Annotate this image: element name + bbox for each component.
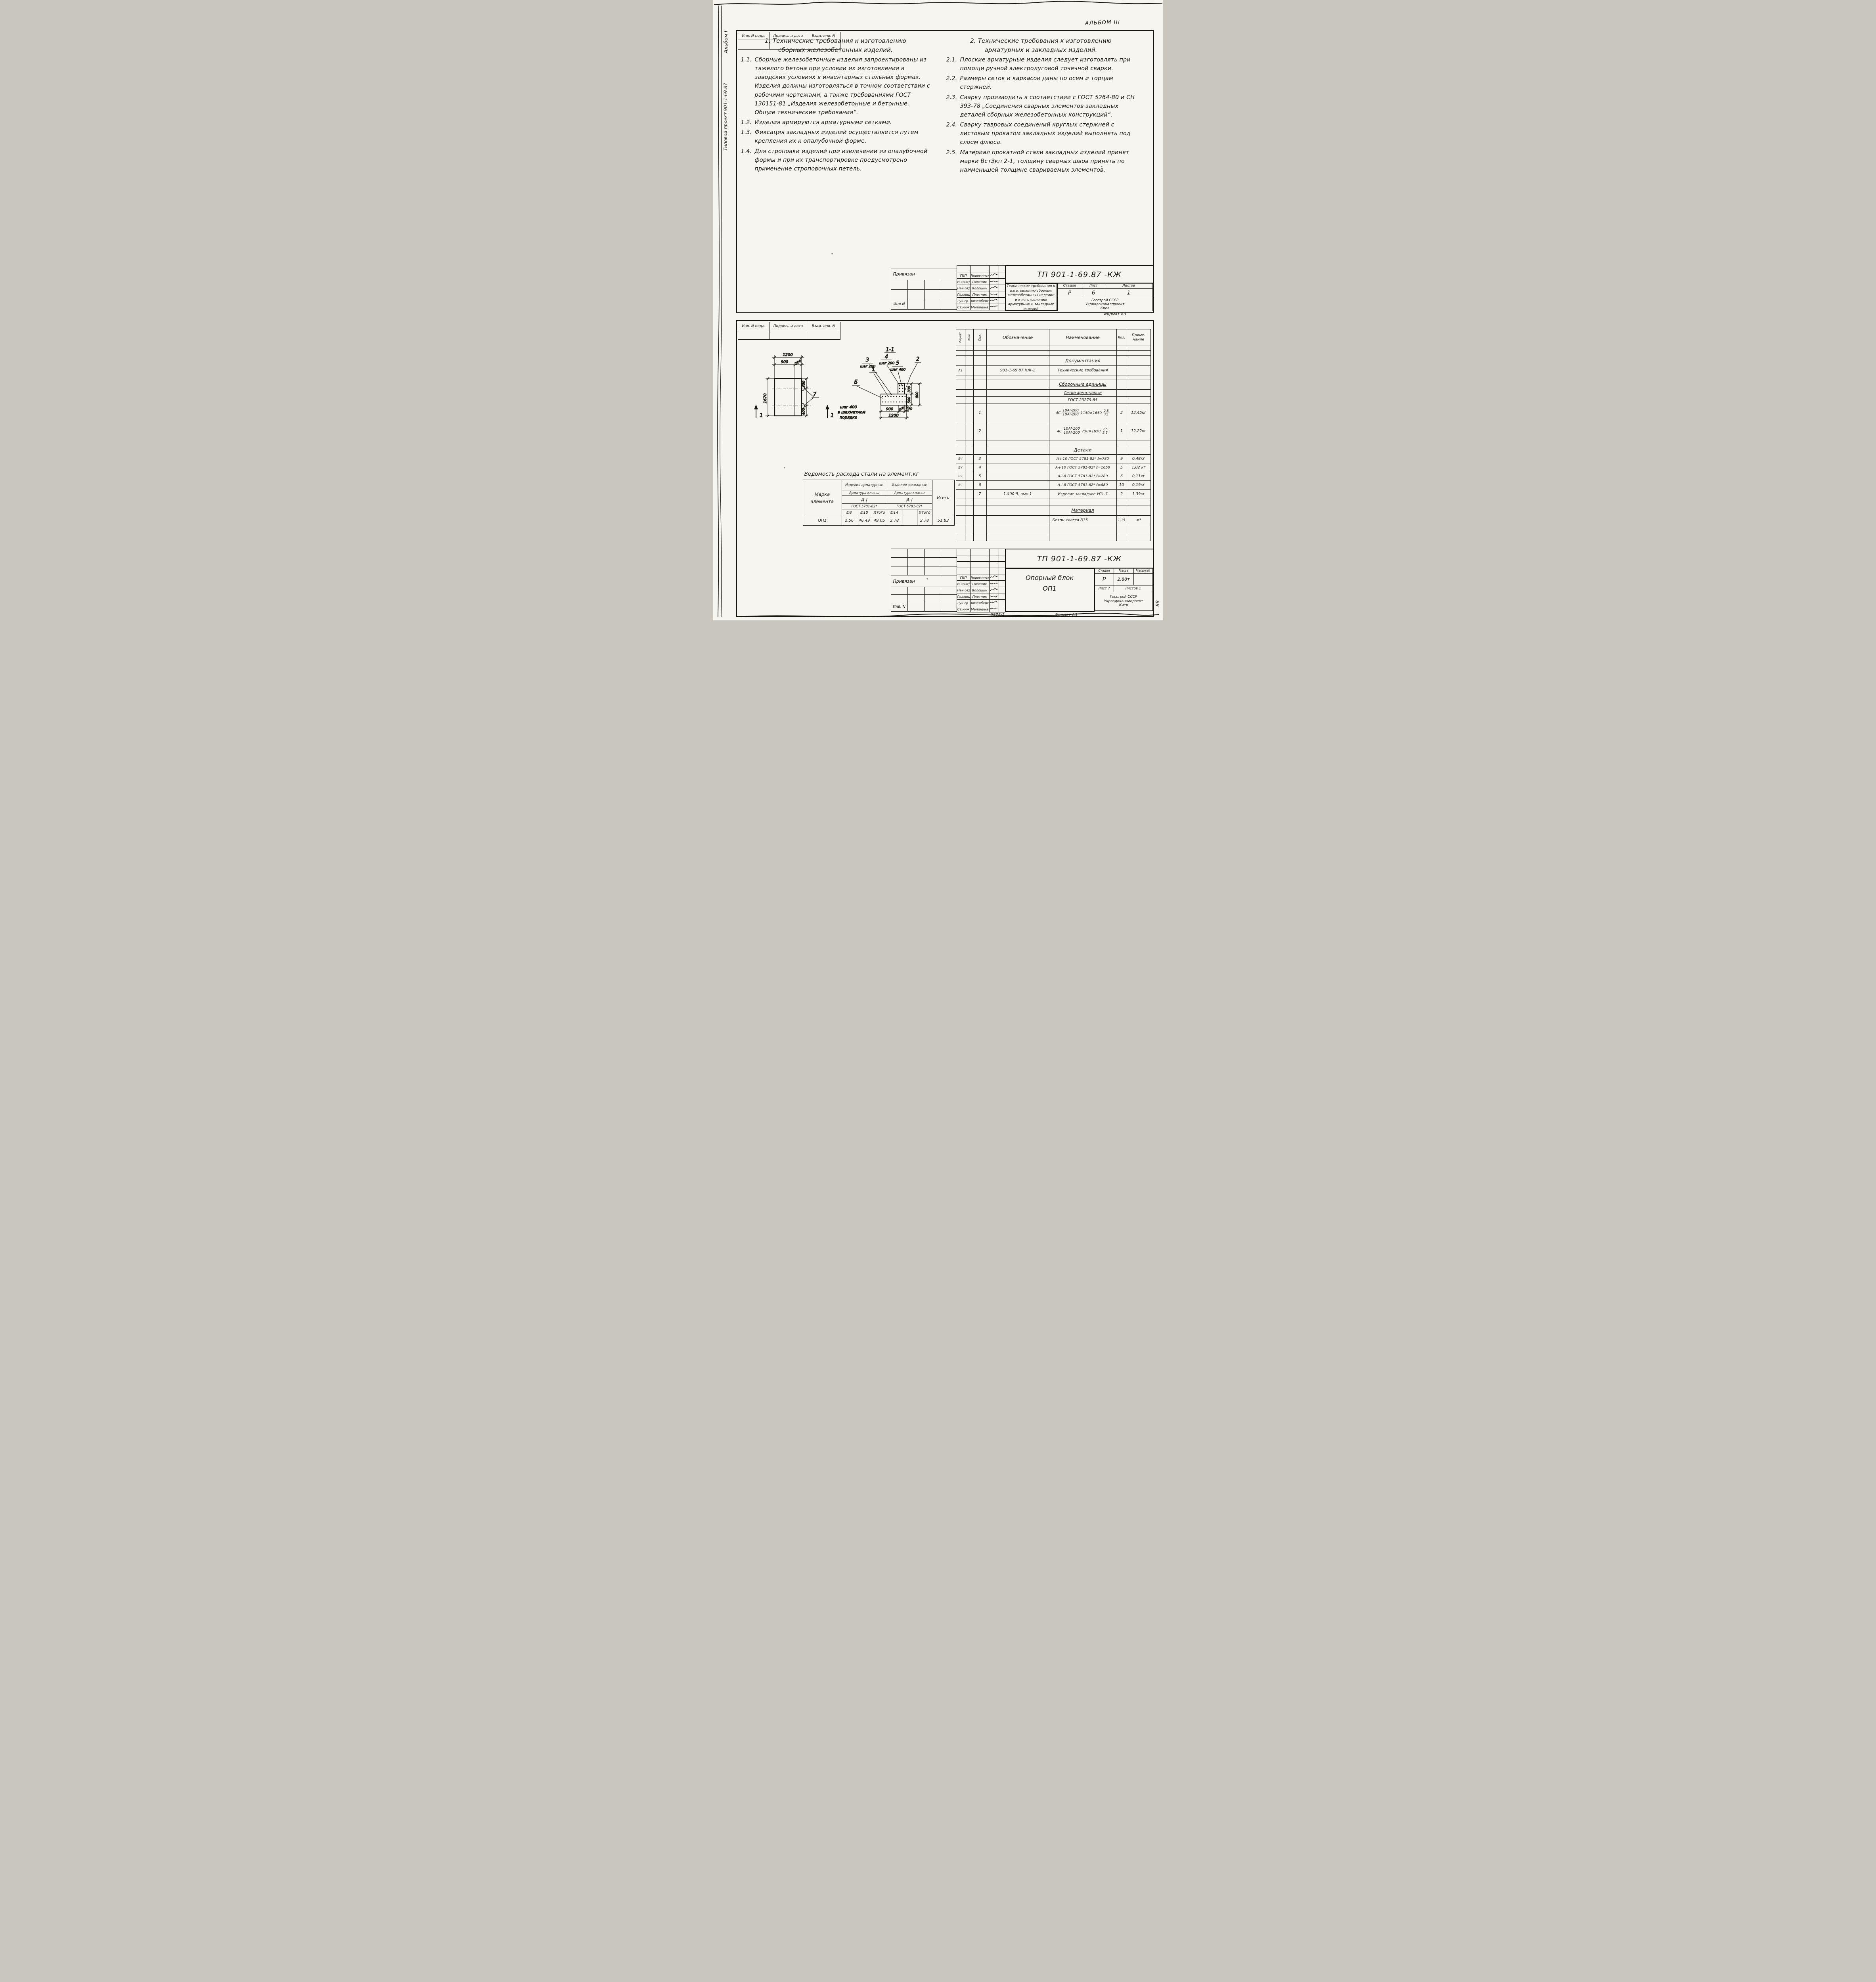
- spec-row-pos: 5: [973, 472, 986, 481]
- spec-row-pos: 6: [973, 481, 986, 490]
- steel-dia-10: Ø10: [857, 509, 872, 516]
- spec-row-pos: 3: [973, 455, 986, 463]
- inv-number-label: Инв. N: [891, 602, 907, 612]
- signature-icon: [990, 575, 998, 579]
- mass-header: Масса: [1114, 568, 1133, 574]
- stage-value: Р: [1057, 289, 1082, 298]
- steel-total-header: Всего: [932, 480, 954, 516]
- item-number: 2.1.: [946, 55, 958, 73]
- signature-icon: [990, 594, 998, 598]
- steel-class-value1: А-I: [842, 496, 887, 504]
- plan-dim-a: 900: [781, 360, 788, 364]
- role-label: Рук.гр.: [957, 600, 970, 606]
- callout-b-note1: шаг 400: [840, 405, 857, 409]
- steel-group2-header: Изделия закладные: [887, 480, 932, 490]
- item-number: 1.4.: [741, 147, 753, 173]
- steel-table-title: Ведомость расхода стали на элемент,кг: [804, 471, 919, 477]
- signature-icon: [990, 601, 998, 604]
- margin-project-note: Типовой проект 901-1-69.87: [723, 59, 728, 151]
- callout-5-note: шаг 400: [890, 368, 905, 372]
- signature-icon: [990, 305, 998, 308]
- stage-header: Стадия: [1095, 568, 1114, 574]
- spec-section-documentation: Документация: [1065, 358, 1100, 363]
- spec-row-note: 0,19кг: [1127, 481, 1150, 490]
- item-text: Фиксация закладных изделий осуществляетс…: [755, 128, 930, 145]
- spec-format-header: Формат: [956, 329, 965, 346]
- spec-row-name: А-I-8 ГОСТ 5781-82* ℓ=280: [1049, 472, 1116, 481]
- sheet2-stamp-strip: Инв. N подл. Подпись и дата Взам. инв. N: [738, 322, 840, 340]
- scale-value: [1133, 574, 1152, 585]
- role-name: Айзенберг: [970, 600, 989, 606]
- sheet-header: Лист: [1082, 283, 1105, 289]
- callout-5: 5: [896, 360, 899, 366]
- signature-icon: [990, 292, 998, 296]
- sheet1-format-note: Формат А3: [1104, 312, 1126, 316]
- sheet2-attached-box: Привязан Инв. N: [891, 576, 957, 612]
- spec-mesh1-name: 4С 10АI-20010АI-200 1150×1650 2,575: [1049, 404, 1116, 422]
- specification-table: Формат Зона Поз. Обозначение Наименовани…: [956, 329, 1151, 541]
- role-name: Волошин: [970, 285, 989, 291]
- sheet2-doc-number: 9575/1: [991, 613, 1005, 617]
- spec-row-note: 12,45кг: [1127, 404, 1150, 422]
- mesh-prefix: 4С: [1056, 411, 1061, 415]
- spec-row-qty: 2: [1116, 404, 1127, 422]
- item-text: Для строповки изделий при извлечении из …: [755, 147, 930, 173]
- req-item: 1.2.Изделия армируются арматурными сетка…: [741, 118, 930, 127]
- steel-value: 49,05: [872, 516, 887, 526]
- req-item: 2.2.Размеры сеток и каркасов даны по ося…: [946, 74, 1136, 92]
- doc-code: ТП 901-1-69.87 -КЖ: [1037, 555, 1122, 563]
- org-line1: Госстрой СССР: [1095, 595, 1152, 599]
- role-label: Нач.отд.: [957, 587, 970, 593]
- spec-row-note: 0,48кг: [1127, 455, 1150, 463]
- req-item: 2.3.Сварку производить в соответствии с …: [946, 93, 1136, 119]
- sec-dim-100: 100: [905, 406, 909, 411]
- role-label: Ст.инж.: [957, 606, 970, 612]
- spec-section-material: Материал: [1071, 508, 1094, 513]
- spec-row-note: 1,39кг: [1127, 490, 1150, 499]
- spec-row-qty: 10: [1116, 481, 1127, 490]
- scale-header: Масштаб: [1133, 568, 1152, 574]
- sheet1-doc-code-cell: ТП 901-1-69.87 -КЖ: [1005, 265, 1154, 284]
- steel-consumption-table: Марка элемента Изделия арматурные Издели…: [803, 480, 955, 526]
- plan-loop-callout: 7: [813, 392, 816, 398]
- spec-section-assembly-units: Сборочные единицы: [1059, 382, 1106, 387]
- plan-dim-total: 1200: [783, 353, 793, 357]
- stage-value: Р: [1095, 574, 1114, 585]
- spec-row-name: А-I-10 ГОСТ 5781-82* ℓ=780: [1049, 455, 1116, 463]
- item-number: 2.2.: [946, 74, 958, 92]
- mesh-frac-bottom: 10АI-200: [1062, 413, 1080, 417]
- callout-2: 2: [916, 356, 919, 362]
- mesh-prefix: 4С: [1057, 429, 1062, 433]
- org-line3: Киев: [1058, 306, 1152, 310]
- role-label: Рук.гр.: [957, 298, 970, 304]
- steel-dia-8: Ø8: [842, 509, 857, 516]
- spec-row-qty: 6: [1116, 472, 1127, 481]
- item-number: 1.2.: [741, 118, 753, 127]
- section1-title-line1: 1. Технические требования к изготовлению: [741, 36, 930, 46]
- sheets-info: Листов 1: [1114, 585, 1152, 592]
- callout-4-note: шаг 200: [879, 362, 894, 365]
- sheet2-element-name-cell: Опорный блок ОП1: [1005, 568, 1095, 612]
- steel-class-label2: Арматура класса: [887, 490, 932, 496]
- element-name-line1: Опорный блок: [1006, 572, 1094, 583]
- sheet2-empty-grid: [891, 549, 957, 575]
- spec-doc-format: А3: [956, 366, 965, 375]
- callout-3: 3: [865, 357, 869, 363]
- role-label: Ст.инж.: [957, 304, 970, 310]
- item-text: Размеры сеток и каркасов даны по осям и …: [960, 74, 1136, 92]
- role-name: Плотник: [970, 279, 989, 285]
- spec-doc-designation: 901-1-69.87 КЖ-1: [986, 366, 1049, 375]
- role-label: Н.контр.: [957, 581, 970, 587]
- spec-row-format: БЧ: [956, 472, 965, 481]
- req-item: 1.4.Для строповки изделий при извлечении…: [741, 147, 930, 173]
- sheet2-stage-table: Стадия Масса Масштаб Р 2,88т Лист 7 Лист…: [1095, 568, 1153, 611]
- mesh-frac-bottom: 10АI-200: [1063, 431, 1081, 435]
- spec-row-note: 0,11кг: [1127, 472, 1150, 481]
- item-number: 2.5.: [946, 148, 958, 174]
- item-text: Сварку тавровых соединений круглых стерж…: [960, 121, 1136, 147]
- plan-dim-r2: 400: [802, 408, 806, 415]
- steel-subtotal-label1: Итого: [872, 509, 887, 516]
- spec-row-format: БЧ: [956, 463, 965, 472]
- sec-dim-r800: 800: [915, 392, 919, 398]
- spec-row-pos: 7: [973, 490, 986, 499]
- mesh-gap-bottom: 2,5: [1102, 431, 1108, 434]
- sheets-header: Листов: [1105, 283, 1152, 289]
- role-name: Новоминский: [970, 272, 989, 279]
- sec-dim-r300: 300: [907, 386, 911, 392]
- scanned-drawing-page: Альбом I Типовой проект 901-1-69.87 АЛЬБ…: [713, 0, 1163, 620]
- support-block-drawing: 7 1200 900 300 1670 400 400 1 1 1-1: [748, 346, 934, 431]
- steel-value: 2,56: [842, 516, 857, 526]
- plan-dim-height: 1670: [763, 393, 768, 403]
- sec-dim-1200: 1200: [888, 413, 898, 418]
- item-number: 1.3.: [741, 128, 753, 145]
- steel-element-mark: ОП1: [803, 516, 842, 526]
- attached-label: Привязан: [891, 268, 957, 280]
- callout-b: Б: [854, 379, 858, 385]
- org-line2: Укрводоканалпроект: [1095, 599, 1152, 604]
- signature-icon: [990, 588, 998, 591]
- callout-4: 4: [884, 354, 888, 360]
- spec-designation-header: Обозначение: [986, 329, 1049, 346]
- steel-mark-header1: Марка: [804, 491, 841, 498]
- item-text: Материал прокатной стали закладных издел…: [960, 148, 1136, 174]
- item-text: Плоские арматурные изделия следует изгот…: [960, 55, 1136, 73]
- signature-icon: [990, 279, 998, 283]
- requirements-section-2: 2. Технические требования к изготовлению…: [946, 36, 1136, 174]
- sheet-value: 6: [1082, 289, 1105, 298]
- steel-value: 2,78: [917, 516, 932, 526]
- role-label: ГИП: [957, 272, 970, 279]
- sheet2-signature-table: ГИПНовоминский Н.контр.Плотник Нач.отд.В…: [957, 549, 1005, 612]
- role-name: Плотник: [970, 581, 989, 587]
- signature-icon: [990, 273, 998, 277]
- album-number-note: АЛЬБОМ III: [1085, 19, 1120, 26]
- spec-section-details: Детали: [1074, 447, 1092, 453]
- sheet-info: Лист 7: [1095, 585, 1114, 592]
- item-number: 2.4.: [946, 121, 958, 147]
- section2-title-line1: 2. Технические требования к изготовлению: [946, 36, 1136, 46]
- margin-album-note: Альбом I: [723, 13, 729, 53]
- spec-row-qty: 9: [1116, 455, 1127, 463]
- mass-value: 2,88т: [1114, 574, 1133, 585]
- stamp-inv-label: Инв. N подл.: [738, 322, 770, 330]
- signature-icon: [990, 286, 998, 289]
- spec-row-note: 12,22кг: [1127, 422, 1150, 440]
- signature-icon: [990, 298, 998, 302]
- spec-row-format: БЧ: [956, 455, 965, 463]
- role-name: Волошин: [970, 587, 989, 593]
- role-name: Айзенберг: [970, 298, 989, 304]
- spec-note-header1: Приме-: [1128, 333, 1150, 338]
- role-name: Малинина: [970, 606, 989, 612]
- steel-value: 46,49: [857, 516, 872, 526]
- spec-row-designation: 1.400-9, вып.1: [986, 490, 1049, 499]
- spec-row-qty: 1: [1116, 422, 1127, 440]
- role-label: Гл.спец.: [957, 593, 970, 600]
- callout-b-note2: в шахматном: [838, 410, 865, 415]
- spec-row-qty: 5: [1116, 463, 1127, 472]
- sec-dim-r500: 500: [907, 397, 911, 403]
- spec-row-name: А-I-10 ГОСТ 5781-82* ℓ=1650: [1049, 463, 1116, 472]
- steel-gost2: ГОСТ 5781-82*: [887, 504, 932, 509]
- steel-total-value: 51,83: [932, 516, 954, 526]
- spec-row-pos: 2: [973, 422, 986, 440]
- spec-name-header: Наименование: [1049, 329, 1116, 346]
- req-item: 2.5.Материал прокатной стали закладных и…: [946, 148, 1136, 174]
- steel-class-label1: Арматура класса: [842, 490, 887, 496]
- spec-pos-header: Поз.: [973, 329, 986, 346]
- org-line3: Киев: [1095, 603, 1152, 608]
- item-text: Сварку производить в соответствии с ГОСТ…: [960, 93, 1136, 119]
- sheet1-doc-title-cell: Технические требования к изготовлению сб…: [1005, 283, 1057, 311]
- attached-label: Привязан: [891, 576, 957, 587]
- role-name: Плотник: [970, 291, 989, 298]
- margin-mark: 88: [1155, 587, 1160, 606]
- spec-material-name: Бетон класса В15: [1049, 516, 1116, 525]
- steel-gost1: ГОСТ 5781-82*: [842, 504, 887, 509]
- role-label: Гл.спец.: [957, 291, 970, 298]
- item-number: 1.1.: [741, 55, 753, 117]
- sheet1-attached-box: Привязан Инв.N: [891, 268, 957, 310]
- steel-mark-header2: элемента: [804, 498, 841, 505]
- spec-mesh-gost: ГОСТ 23279-85: [1049, 397, 1116, 404]
- stamp-repl-label: Взам. инв. N: [807, 322, 840, 330]
- role-label: Нач.отд.: [957, 285, 970, 291]
- item-number: 2.3.: [946, 93, 958, 119]
- item-text: Сборные железобетонные изделия запроекти…: [755, 55, 930, 117]
- spec-material-unit: м³: [1127, 516, 1150, 525]
- item-text: Изделия армируются арматурными сетками.: [755, 118, 930, 127]
- section-view-title: 1-1: [886, 347, 894, 353]
- sheet2-format-note: Формат А3: [1055, 613, 1078, 617]
- stage-header: Стадия: [1057, 283, 1082, 289]
- role-name: Малинина: [970, 304, 989, 310]
- role-name: Плотник: [970, 593, 989, 600]
- spec-mesh2-name: 4С 10АI-10010АI-200 750×1650 2,52,5: [1049, 422, 1116, 440]
- spec-note-header2: чание: [1128, 338, 1150, 342]
- mesh-gap-bottom: 75: [1103, 413, 1110, 416]
- mesh-size: 1150×1650: [1081, 411, 1102, 415]
- spec-zone-header: Зона: [965, 329, 973, 346]
- sheet2-doc-code-cell: ТП 901-1-69.87 -КЖ: [1005, 549, 1154, 569]
- spec-row-name: А-I-8 ГОСТ 5781-82* ℓ=480: [1049, 481, 1116, 490]
- steel-subtotal-label2: Итого: [917, 509, 932, 516]
- mesh-size: 750×1650: [1082, 429, 1101, 433]
- spec-row-pos: 1: [973, 404, 986, 422]
- req-item: 2.4.Сварку тавровых соединений круглых с…: [946, 121, 1136, 147]
- section1-title-line2: сборных железобетонных изделий.: [741, 46, 930, 55]
- role-label: Н.контр.: [957, 279, 970, 285]
- spec-row-note: 1,02 кг: [1127, 463, 1150, 472]
- sheets-value: 1: [1105, 289, 1152, 298]
- spec-row-name: Изделие закладное УП1-7: [1049, 490, 1116, 499]
- req-item: 2.1.Плоские арматурные изделия следует и…: [946, 55, 1136, 73]
- role-label: ГИП: [957, 574, 970, 581]
- cut-mark-2: 1: [831, 413, 834, 419]
- steel-dia-14: Ø14: [887, 509, 902, 516]
- spec-row-pos: 4: [973, 463, 986, 472]
- sheet1-stage-table: Стадия Лист Листов Р 6 1 Госстрой СССР У…: [1057, 283, 1153, 311]
- steel-class-value2: А-I: [887, 496, 932, 504]
- steel-value: 2,78: [887, 516, 902, 526]
- req-item: 1.1.Сборные железобетонные изделия запро…: [741, 55, 930, 117]
- org-line1: Госстрой СССР: [1058, 298, 1152, 302]
- spec-qty-header: Кол.: [1116, 329, 1127, 346]
- steel-group1-header: Изделия арматурные: [842, 480, 887, 490]
- callout-b-note3: порядке: [840, 415, 857, 420]
- role-name: Новоминский: [970, 574, 989, 581]
- spec-row-format: БЧ: [956, 481, 965, 490]
- requirements-section-1: 1. Технические требования к изготовлению…: [741, 36, 930, 173]
- sec-dim-900: 900: [886, 407, 893, 411]
- signature-icon: [990, 607, 998, 610]
- org-line2: Укрводоканалпроект: [1058, 302, 1152, 306]
- doc-code: ТП 901-1-69.87 -КЖ: [1037, 270, 1122, 279]
- plan-dim-r1: 400: [802, 381, 806, 387]
- inv-number-label: Инв.N: [891, 299, 907, 310]
- spec-mesh-group-label: Сетки арматурные: [1064, 391, 1101, 395]
- signature-icon: [990, 582, 998, 585]
- req-item: 1.3.Фиксация закладных изделий осуществл…: [741, 128, 930, 145]
- doc-title: Технические требования к изготовлению сб…: [1007, 284, 1055, 311]
- element-name-line2: ОП1: [1006, 583, 1094, 594]
- cut-mark-1: 1: [760, 413, 763, 419]
- section2-title-line2: арматурных и закладных изделий.: [946, 46, 1136, 55]
- sheet1-signature-table: ГИПНовоминский Н.контр.Плотник Нач.отд.В…: [957, 265, 1005, 310]
- spec-row-qty: 2: [1116, 490, 1127, 499]
- sec-dim-300: 300: [898, 406, 905, 412]
- callout-1: 1: [871, 367, 875, 373]
- spec-doc-name: Технические требования: [1049, 366, 1116, 375]
- stamp-sign-label: Подпись и дата: [770, 322, 807, 330]
- spec-material-qty: 1,15: [1116, 516, 1127, 525]
